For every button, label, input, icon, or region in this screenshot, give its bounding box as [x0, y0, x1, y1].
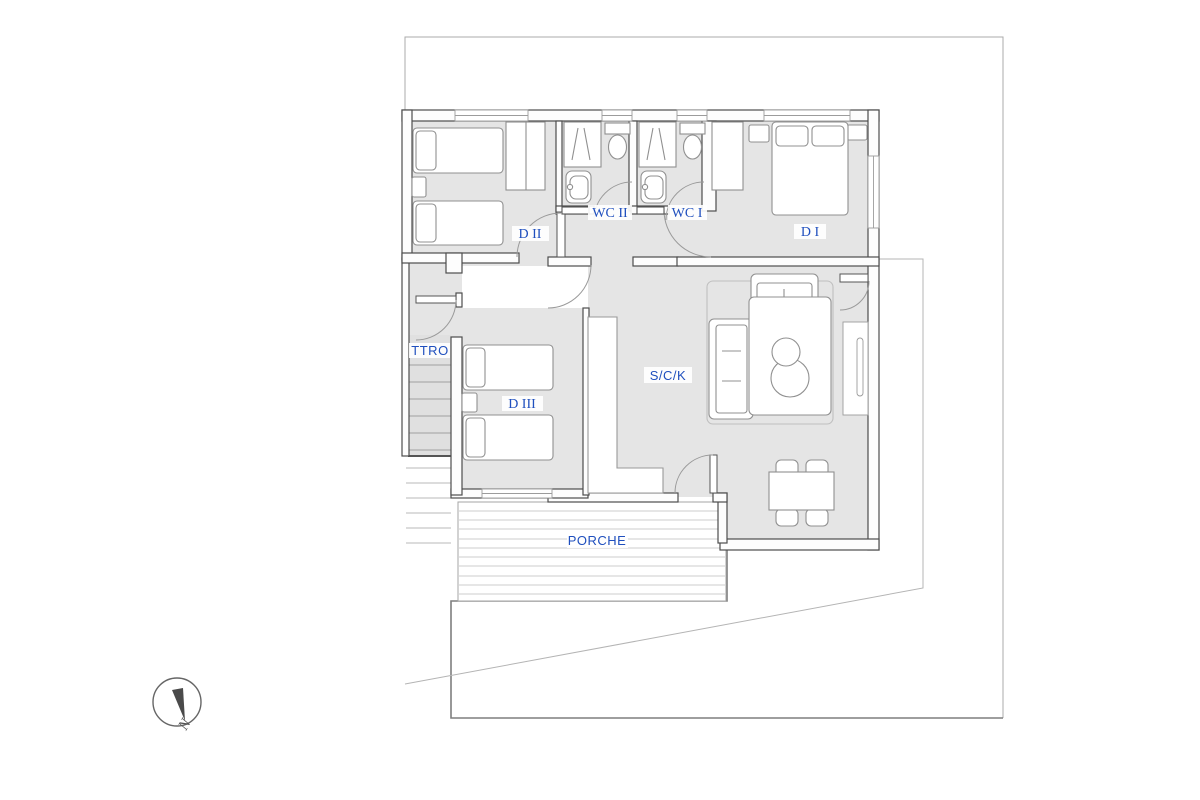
floor-plan-drawing: D II WC II WC I D I TTRO D III S/C/K POR…: [0, 0, 1200, 800]
toilet-cistern: [680, 123, 705, 134]
wall-south-living: [720, 539, 879, 550]
nightstand: [412, 177, 426, 197]
label-wc2: WC II: [592, 206, 628, 221]
wc-shelf: [637, 207, 664, 214]
wall-west-ttro: [402, 258, 409, 456]
wc-shelf: [562, 207, 589, 214]
pillow: [812, 126, 844, 146]
wall-vestibule-step: [446, 253, 462, 273]
compass-north-letter: N: [175, 715, 195, 733]
shower: [639, 122, 676, 167]
label-porch: PORCHE: [568, 533, 627, 548]
compass-circle: [153, 678, 201, 726]
wall-wc2-west: [556, 121, 562, 211]
nightstand: [749, 125, 769, 142]
toilet-bowl: [684, 135, 702, 159]
label-wc1: WC I: [672, 206, 703, 221]
side-table-small: [772, 338, 800, 366]
window-living-east-slider: [843, 322, 868, 415]
sink-faucet: [642, 184, 647, 189]
nightstand: [847, 125, 867, 140]
toilet-cistern: [605, 123, 630, 134]
window-bedroom1-east: [868, 156, 879, 228]
porch-outline: [458, 502, 726, 601]
wall-ttro-door-jamb: [456, 293, 462, 307]
window-wc2-north: [602, 110, 632, 121]
sink-faucet: [567, 184, 572, 189]
wall-west-upper: [402, 110, 412, 260]
wardrobe: [712, 122, 743, 190]
chair: [776, 509, 798, 526]
exterior-stairs: [406, 468, 451, 543]
label-ttro: TTRO: [411, 343, 448, 358]
wall-bedroom3-west: [451, 337, 462, 495]
wall-bedroom1-south: [677, 257, 879, 266]
pillow: [466, 348, 485, 387]
north-compass: N: [153, 678, 201, 734]
porch-area: [458, 502, 726, 601]
pillow: [416, 131, 436, 170]
pillow: [416, 204, 436, 242]
dining-table: [769, 472, 834, 510]
nightstand: [462, 393, 477, 412]
label-bedroom2: D II: [519, 227, 542, 242]
label-bedroom1: D I: [801, 225, 820, 240]
label-bedroom3: D III: [508, 397, 536, 412]
wall-porch-door-jamb: [713, 493, 727, 502]
sofa-seat: [716, 325, 747, 413]
toilet-bowl: [609, 135, 627, 159]
floor-plan-page: D II WC II WC I D I TTRO D III S/C/K POR…: [0, 0, 1200, 800]
label-living-kitchen: S/C/K: [650, 368, 686, 383]
chair: [806, 509, 828, 526]
wall-hall-south-right: [633, 257, 678, 266]
pillow: [776, 126, 808, 146]
compass-needle-icon: [172, 688, 185, 721]
window-bedroom2-north: [455, 110, 528, 121]
window-bedroom1-north: [764, 110, 850, 121]
wall-hall-south-left: [548, 257, 591, 266]
shower: [564, 122, 601, 167]
door-hall-to-living: [548, 265, 591, 308]
pillow: [466, 418, 485, 457]
window-wc1-north: [677, 110, 707, 121]
window-bedroom3-south: [482, 489, 552, 498]
